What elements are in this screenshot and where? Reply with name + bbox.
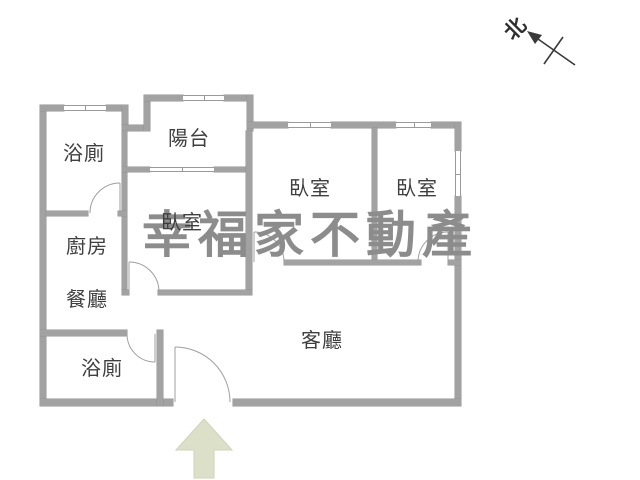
room-label-bedroom-middle: 臥室 [260, 178, 360, 200]
room-label-bath-top: 浴廁 [34, 143, 134, 165]
room-label-living: 客廳 [272, 330, 372, 352]
entry-arrow [176, 419, 232, 478]
room-label-balcony: 陽台 [139, 128, 239, 150]
room-label-dining: 餐廳 [37, 289, 137, 311]
floor-plan: 北 幸福家不動產 浴廁 陽台 臥室 臥室 臥室 廚房 餐廳 浴廁 客廳 [0, 0, 640, 480]
room-label-kitchen: 廚房 [37, 236, 137, 258]
room-label-bedroom-left: 臥室 [132, 212, 232, 234]
room-label-bath-bottom: 浴廁 [52, 358, 152, 380]
room-label-bedroom-right: 臥室 [367, 178, 467, 200]
